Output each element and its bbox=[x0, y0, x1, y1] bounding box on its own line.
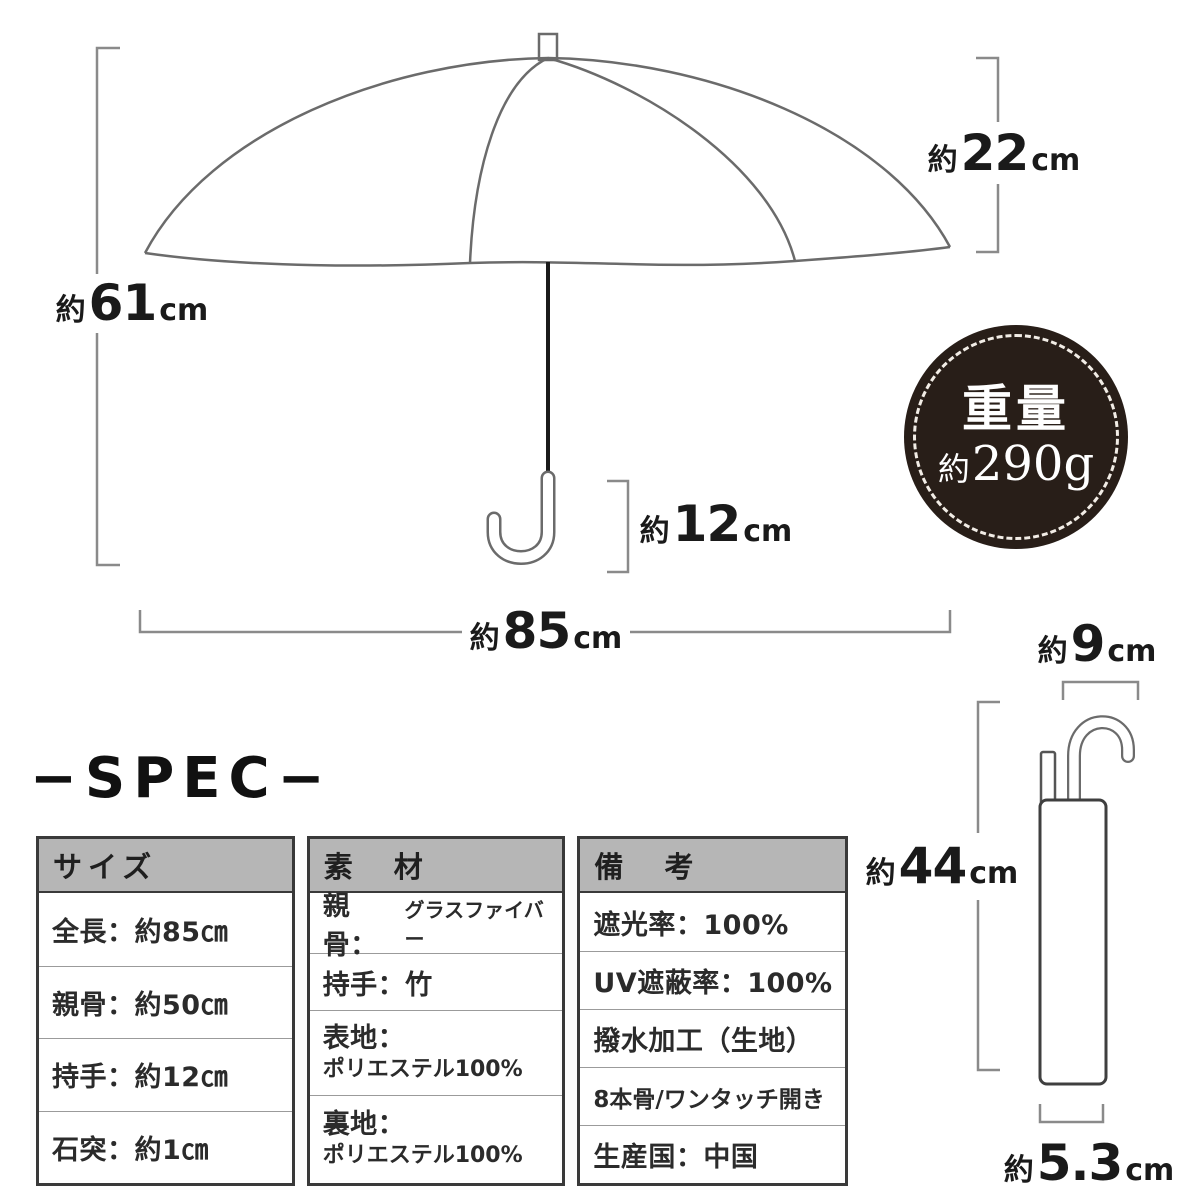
bracket-9cm bbox=[1063, 682, 1138, 700]
table-row: 撥水加工（生地） bbox=[580, 1009, 845, 1067]
umbrella-canopy-top bbox=[145, 58, 950, 253]
dim-unit: cm bbox=[1125, 1153, 1174, 1188]
dim-unit: cm bbox=[159, 293, 208, 328]
umbrella-rib-right bbox=[548, 58, 795, 261]
ferrule bbox=[539, 34, 557, 60]
approx-prefix: 約 bbox=[640, 506, 670, 550]
dim-label-canopy-depth: 約 22 cm bbox=[923, 124, 1086, 182]
spec-heading: −SPEC− bbox=[30, 746, 333, 811]
dim-label-handle-length: 約 12 cm bbox=[635, 495, 798, 553]
dim-unit: cm bbox=[573, 621, 622, 656]
weight-badge-title: 重量 bbox=[962, 381, 1070, 436]
table-row: UV遮蔽率：100% bbox=[580, 951, 845, 1009]
dim-value: 61 bbox=[89, 274, 157, 332]
folded-hook-fill bbox=[1074, 722, 1128, 806]
dim-unit: cm bbox=[1031, 143, 1080, 178]
dim-value: 22 bbox=[961, 124, 1029, 182]
open-umbrella-drawing bbox=[145, 34, 950, 558]
column-header-notes: 備 考 bbox=[580, 839, 845, 893]
folded-umbrella-drawing bbox=[1040, 722, 1128, 1084]
row-value: ポリエステル100% bbox=[323, 1142, 523, 1170]
row-value: グラスファイバー bbox=[405, 894, 563, 952]
dim-unit: cm bbox=[969, 856, 1018, 891]
umbrella-rib-left bbox=[470, 58, 548, 263]
dim-label-folded-width: 約 5.3 cm bbox=[999, 1134, 1180, 1192]
dim-label-folded-hook-width: 約 9 cm bbox=[1033, 615, 1162, 673]
dim-value: 85 bbox=[503, 602, 571, 660]
spec-column-material: 素 材 親骨： グラスファイバー 持手：竹 表地： ポリエステル100% 裏地：… bbox=[307, 836, 566, 1186]
table-row: 持手：約12㎝ bbox=[39, 1038, 292, 1111]
table-row: 全長：約85㎝ bbox=[39, 893, 292, 966]
dim-value: 12 bbox=[673, 495, 741, 553]
table-row: 親骨： グラスファイバー bbox=[310, 893, 563, 953]
weight-value: 290g bbox=[972, 436, 1094, 494]
approx-prefix: 約 bbox=[866, 848, 896, 892]
spec-table: サイズ 全長：約85㎝ 親骨：約50㎝ 持手：約12㎝ 石突：約1㎝ 素 材 親… bbox=[36, 836, 848, 1186]
table-row: 親骨：約50㎝ bbox=[39, 966, 292, 1039]
approx-prefix: 約 bbox=[470, 613, 500, 657]
weight-badge-value: 約 290g bbox=[938, 436, 1094, 494]
table-row: 裏地： ポリエステル100% bbox=[310, 1095, 563, 1181]
row-label: 裏地： bbox=[323, 1108, 406, 1142]
row-label: 表地： bbox=[323, 1022, 406, 1056]
approx-prefix: 約 bbox=[56, 285, 86, 329]
approx-prefix: 約 bbox=[1004, 1145, 1034, 1189]
table-row: 遮光率：100% bbox=[580, 893, 845, 951]
product-spec-infographic: 約 61 cm 約 22 cm 約 12 cm 約 85 cm 約 9 cm 約… bbox=[0, 0, 1200, 1200]
dim-unit: cm bbox=[743, 514, 792, 549]
umbrella-handle-fill bbox=[494, 478, 548, 558]
dim-value: 5.3 bbox=[1037, 1134, 1123, 1192]
folded-strap bbox=[1041, 752, 1055, 804]
row-label: 親骨： bbox=[323, 884, 405, 962]
dim-label-open-width: 約 85 cm bbox=[465, 602, 628, 660]
table-row: 生産国：中国 bbox=[580, 1125, 845, 1183]
dim-label-total-height: 約 61 cm bbox=[51, 274, 214, 332]
table-row: 持手：竹 bbox=[310, 953, 563, 1010]
column-header-size: サイズ bbox=[39, 839, 292, 893]
approx-prefix: 約 bbox=[938, 450, 970, 488]
bracket-12cm bbox=[607, 481, 628, 572]
table-row: 8本骨/ワンタッチ開き bbox=[580, 1067, 845, 1125]
approx-prefix: 約 bbox=[1038, 626, 1068, 670]
folded-body bbox=[1040, 800, 1106, 1084]
weight-badge: 重量 約 290g bbox=[904, 325, 1128, 549]
approx-prefix: 約 bbox=[928, 135, 958, 179]
dim-label-folded-height: 約 44 cm bbox=[861, 837, 1024, 895]
spec-column-notes: 備 考 遮光率：100% UV遮蔽率：100% 撥水加工（生地） 8本骨/ワンタ… bbox=[577, 836, 848, 1186]
table-row: 表地： ポリエステル100% bbox=[310, 1010, 563, 1095]
dim-value: 44 bbox=[899, 837, 967, 895]
dim-unit: cm bbox=[1107, 634, 1156, 669]
dim-value: 9 bbox=[1071, 615, 1105, 673]
spec-column-size: サイズ 全長：約85㎝ 親骨：約50㎝ 持手：約12㎝ 石突：約1㎝ bbox=[36, 836, 295, 1186]
table-row: 石突：約1㎝ bbox=[39, 1111, 292, 1184]
row-value: ポリエステル100% bbox=[323, 1056, 523, 1084]
bracket-5-3cm bbox=[1040, 1104, 1103, 1122]
